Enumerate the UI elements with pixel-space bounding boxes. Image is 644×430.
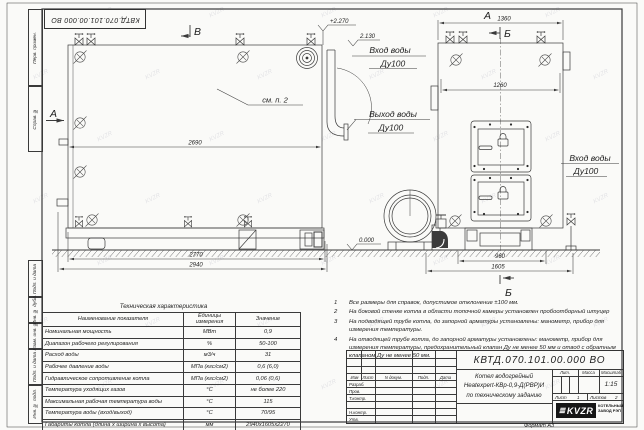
table-title: Техническая характеристика — [42, 303, 285, 310]
outlet-dn: Ду100 — [378, 123, 404, 133]
col-data: Дата — [435, 375, 456, 380]
lifting-eye-icon — [539, 54, 552, 67]
col-list: Лист — [361, 375, 375, 380]
tech-characteristics: Техническая характеристика Наименование … — [42, 303, 285, 430]
drain-valve-icon — [184, 216, 192, 227]
row-nkontr: Н.контр. — [349, 410, 367, 415]
margin-cell: Перв. примен. — [28, 9, 43, 87]
dim-2940: 2940 — [188, 263, 203, 269]
margin-cell: Справ. № — [28, 85, 43, 152]
dim-1360: 1360 — [497, 17, 511, 23]
company-name: КОТЕЛЬНЫЙ ЗАВОД РЭП — [598, 404, 622, 414]
margin-cell: Взам. инв. № — [28, 322, 43, 350]
table-row: Гидравлическое сопротивление котлаМПа (к… — [43, 373, 301, 385]
valve-icon — [537, 31, 546, 43]
dimensions — [58, 20, 573, 274]
format-label: Формат А3 — [524, 423, 554, 429]
boiler-front-view — [431, 31, 576, 255]
product-name: Котел водогрейный Heatexpert-КВр-0,9-Д(Р… — [456, 369, 552, 403]
boiler-side-view — [57, 33, 372, 249]
view-v-label: В — [194, 26, 201, 38]
row-razrab: Разраб. — [349, 382, 365, 387]
col-ndoc: N докум. — [375, 375, 412, 380]
sheet-value: 1 — [577, 395, 580, 400]
sheets-value: 2 — [615, 395, 618, 400]
section-b-label-top: Б — [504, 28, 511, 40]
lifting-eye-icon — [86, 214, 99, 227]
lifting-eye-icon — [74, 51, 87, 64]
fan-blower — [384, 190, 448, 250]
lifting-eye-icon — [450, 54, 463, 67]
valve-icon — [446, 31, 455, 43]
dim-960: 960 — [495, 254, 506, 260]
table-row: Расход водым3/ч31 — [43, 350, 301, 362]
lifting-eye-icon — [449, 215, 462, 228]
inlet-label-front: Вход воды — [569, 153, 611, 163]
view-a-label-left: А — [49, 108, 57, 120]
company-logo: ≣KVZR — [556, 403, 596, 418]
inlet-dn-front: Ду100 — [573, 166, 599, 176]
elev-top: +2.270 — [330, 19, 349, 25]
tech-table: Наименование показателя Единицыизмерения… — [42, 312, 301, 430]
outlet-label: Выход воды — [369, 109, 418, 119]
see-note-annotation: см. п. 2 — [262, 96, 288, 105]
upper-door — [471, 121, 531, 172]
valve-icon — [459, 31, 468, 43]
lower-door — [471, 175, 531, 221]
top-stamp-docnumber: КВТД.070.101.00.000 ВО — [51, 16, 140, 23]
table-row: Номинальная мощностьМВт0,9 — [43, 327, 301, 339]
row-tkontr: Т.контр. — [349, 396, 366, 401]
note-item: 3На подводящей трубе котла, до запорной … — [330, 318, 620, 335]
ground-line — [52, 250, 600, 257]
row-prov: Пров. — [349, 389, 360, 394]
margin-cell: Инв. № дубл. — [28, 296, 43, 324]
col-izm: Изм — [348, 375, 361, 380]
leaders — [217, 56, 619, 177]
table-header-row: Наименование показателя Единицыизмерения… — [43, 313, 301, 327]
lifting-eye-icon — [540, 215, 553, 228]
table-row: Температура воды (вход/выход)°С70/95 — [43, 408, 301, 420]
table-row: Температура уходящих газов°Сне более 220 — [43, 384, 301, 396]
margin-cell: Инв. № подл. — [28, 384, 43, 424]
table-row: Диапазон рабочего регулирования%50-100 — [43, 338, 301, 350]
drain-valve-icon — [75, 216, 83, 227]
title-block: Изм Лист N докум. Подп. Дата Разраб. Про… — [346, 350, 624, 424]
masshtab-label: Масштаб — [599, 370, 623, 375]
valve-icon — [307, 33, 316, 45]
inlet-dn-side: Ду100 — [380, 59, 406, 69]
drawing-sheet: А В А Б Б см. п. 2 2690 2770 2940 1360 1… — [0, 0, 644, 430]
elev-pipe: 2.130 — [359, 34, 376, 40]
lit-label: Лит. — [552, 370, 578, 375]
col-podp: Подп. — [412, 375, 435, 380]
inlet-label-side: Вход воды — [369, 45, 411, 55]
flange-circle — [297, 48, 318, 69]
sheets-label: Листов — [590, 395, 606, 400]
scale-value: 1:15 — [599, 376, 623, 393]
dim-1605: 1605 — [491, 265, 505, 271]
table-row: Максимальная рабочая температура воды°С1… — [43, 396, 301, 408]
lifting-eye-icon — [74, 166, 87, 179]
doc-number: КВТД.070.101.00.000 ВО — [456, 351, 623, 369]
elev-zero: 0.000 — [359, 238, 375, 244]
note-item: 2На боковой стенке котла в области топоч… — [330, 308, 620, 316]
note-item: 1Все размеры для справок, допустимое отк… — [330, 299, 620, 307]
margin-cell: Подп. и дата — [28, 260, 43, 298]
valve-icon — [87, 33, 96, 45]
view-a-label-top: А — [483, 10, 491, 22]
sheet-label: Лист — [555, 395, 567, 400]
valve-icon — [567, 213, 576, 225]
row-utv: Утв. — [349, 417, 359, 422]
massa-label: Масса — [578, 370, 599, 375]
valve-icon — [75, 33, 84, 45]
table-row: Рабочее давление водыМПа (кгс/см2)0,6 (6… — [43, 361, 301, 373]
dim-1260: 1260 — [493, 83, 507, 89]
lifting-eye-icon — [74, 117, 87, 130]
dim-2690: 2690 — [187, 141, 202, 147]
top-stamp: КВТД.070.101.00.000 ВО — [44, 9, 146, 29]
section-b-label-bottom: Б — [505, 287, 512, 299]
dim-2770: 2770 — [188, 253, 203, 259]
elevation-marks — [318, 25, 381, 250]
lifting-eye-icon — [237, 51, 250, 64]
lifting-eye-icon — [237, 214, 250, 227]
margin-cell: Подп. и дата — [28, 348, 43, 386]
valve-icon — [236, 33, 245, 45]
table-row: Габариты котла (длина х ширина х высота)… — [43, 419, 301, 430]
outlet-pipe — [327, 50, 372, 140]
